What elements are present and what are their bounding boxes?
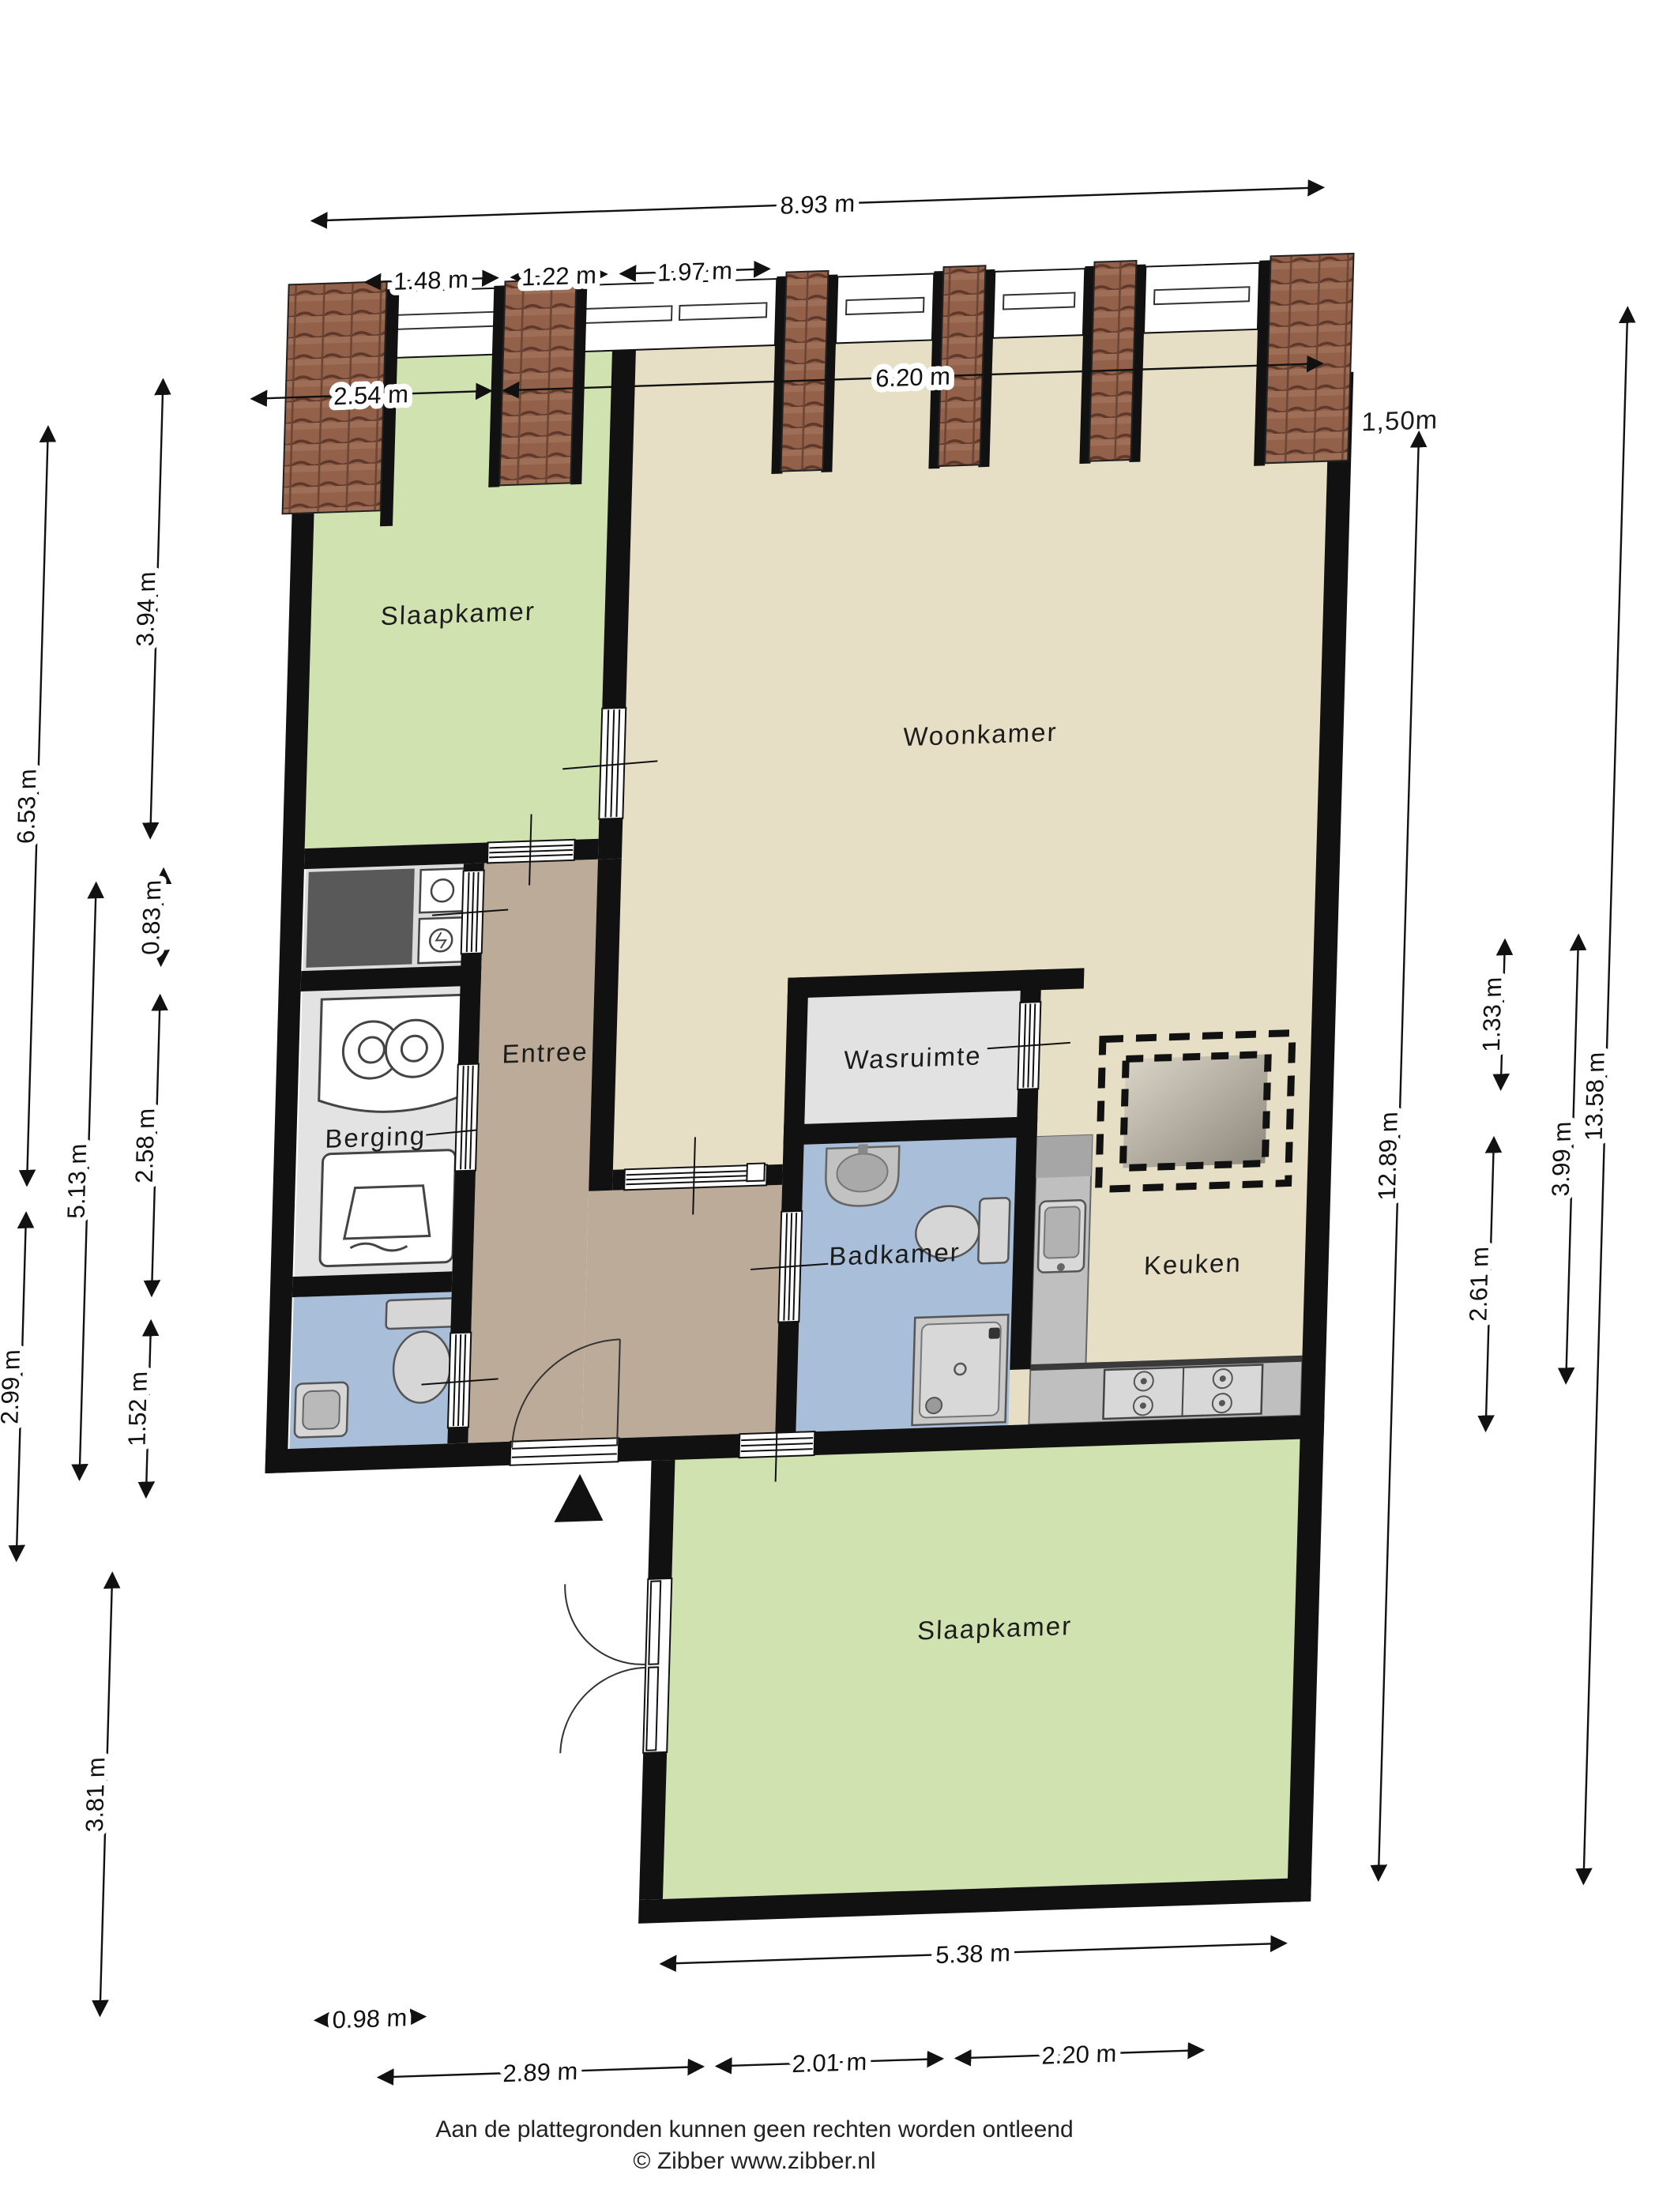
roof-tiles-1 [499,279,576,485]
svg-text:1.97 m: 1.97 m [657,257,733,287]
dimension-bottom-sub1: 2.89 m [378,2053,703,2092]
svg-text:2.61 m: 2.61 m [1464,1247,1494,1322]
dimension-left-storage: 2.58 m [127,995,164,1296]
entrance-arrow-icon [554,1473,604,1522]
dimensions-right: 1,50m 12.89 m 1.33 m 2.61 m 3.99 m 13.58… [1320,307,1631,1892]
label-living: Woonkamer [903,717,1058,751]
svg-text:2.58 m: 2.58 m [130,1108,160,1183]
dimension-right-sub1: 1.33 m [1477,940,1508,1090]
dimension-right-sub2: 2.61 m [1461,1138,1496,1431]
svg-text:0.83 m: 0.83 m [137,879,167,955]
dimension-left-lower: 2.99 m [0,1213,29,1561]
svg-text:1.48 m: 1.48 m [393,265,469,295]
svg-text:5.38 m: 5.38 m [935,1939,1011,1969]
dimension-left-bedroom2: 3.81 m [75,1573,115,2016]
svg-text:2.01 m: 2.01 m [792,2048,867,2078]
dimension-bottom-sub3: 2.20 m [955,2037,1203,2072]
roof-tiles-4 [1089,261,1136,461]
dimension-right-sub3: 3.99 m [1541,935,1582,1384]
label-storage: Berging [325,1121,427,1153]
footer-credit: © Zibber www.zibber.nl [633,2148,875,2174]
svg-text:2.89 m: 2.89 m [502,2057,578,2087]
double-door-bedroom-bottom [560,1578,671,1755]
svg-text:6.53 m: 6.53 m [12,769,42,845]
svg-text:5.13 m: 5.13 m [62,1143,92,1219]
svg-text:3.94 m: 3.94 m [131,571,161,647]
footer-disclaimer: Aan de plattegronden kunnen geen rechten… [435,2116,1073,2142]
roof-tiles-corner-right [1265,254,1353,463]
dimension-top-total: 8.93 m [311,174,1323,235]
door-storage [455,1064,479,1172]
dimension-bottom-bedroom: 5.38 m [660,1930,1286,1978]
dimension-left-wc: 1.52 m [122,1321,154,1498]
tech-dark-cabinet [306,868,414,967]
bathroom-sink-icon [825,1143,899,1207]
dimension-left-tech: 0.83 m [137,869,167,966]
stove-icon [1103,1364,1262,1419]
dimension-bottom-porch: 0.98 m [315,2003,426,2035]
svg-text:2.54 m: 2.54 m [333,380,409,410]
svg-text:1.33 m: 1.33 m [1477,976,1507,1052]
label-bathroom: Badkamer [829,1237,961,1270]
svg-text:6.20 m: 6.20 m [875,362,951,392]
svg-text:8.93 m: 8.93 m [780,190,856,220]
washing-machine-icon [320,1149,456,1266]
dimensions-left: 6.53 m 3.94 m 0.83 m 2.58 m 1.52 m 5.13 … [0,379,180,2020]
floorplan: Slaapkamer Woonkamer Wasruimte Berging E… [0,164,1635,2105]
dimension-right-total: 13.58 m [1559,307,1631,1884]
svg-text:1.52 m: 1.52 m [122,1371,152,1446]
label-bedroom-bottom: Slaapkamer [917,1611,1073,1645]
kitchen-counter-end [1036,1135,1092,1178]
shower-icon [912,1315,1008,1425]
dimension-left-total: 6.53 m [2,427,51,1186]
label-bedroom-top: Slaapkamer [380,596,536,630]
room-bedroom-bottom [663,1439,1300,1899]
svg-text:0.98 m: 0.98 m [332,2003,408,2033]
room-hall-lower [581,1185,782,1439]
label-hall: Entree [502,1036,589,1069]
svg-text:2.20 m: 2.20 m [1041,2040,1117,2070]
boiler-icon [318,995,464,1114]
kitchen-sink-icon [1038,1200,1086,1273]
svg-text:1.22 m: 1.22 m [521,261,597,291]
label-kitchen: Keuken [1143,1247,1242,1280]
height-note: 1,50m [1361,404,1439,436]
svg-text:13.58 m: 13.58 m [1580,1051,1610,1141]
dimension-left-bedroom: 3.94 m [126,379,166,838]
dimension-left-mid: 5.13 m [55,883,99,1480]
svg-text:2.99 m: 2.99 m [0,1349,25,1425]
svg-text:12.89 m: 12.89 m [1373,1112,1403,1201]
roof-tiles-2 [781,271,828,472]
floorplan-canvas: Slaapkamer Woonkamer Wasruimte Berging E… [0,0,1659,2212]
dimension-top-sub2: 1.22 m [511,261,607,292]
svg-text:3.81 m: 3.81 m [81,1757,111,1833]
label-laundry: Wasruimte [844,1041,982,1075]
svg-text:3.99 m: 3.99 m [1547,1121,1577,1197]
dimensions-bottom: 5.38 m 0.98 m 2.89 m 2.01 m 2.20 m [313,1930,1286,2093]
dimension-right-main: 12.89 m [1354,432,1422,1881]
corner-sink-icon [295,1382,348,1438]
dimension-bottom-sub2: 2.01 m [716,2045,942,2080]
room-hall-corridor [468,860,598,1443]
